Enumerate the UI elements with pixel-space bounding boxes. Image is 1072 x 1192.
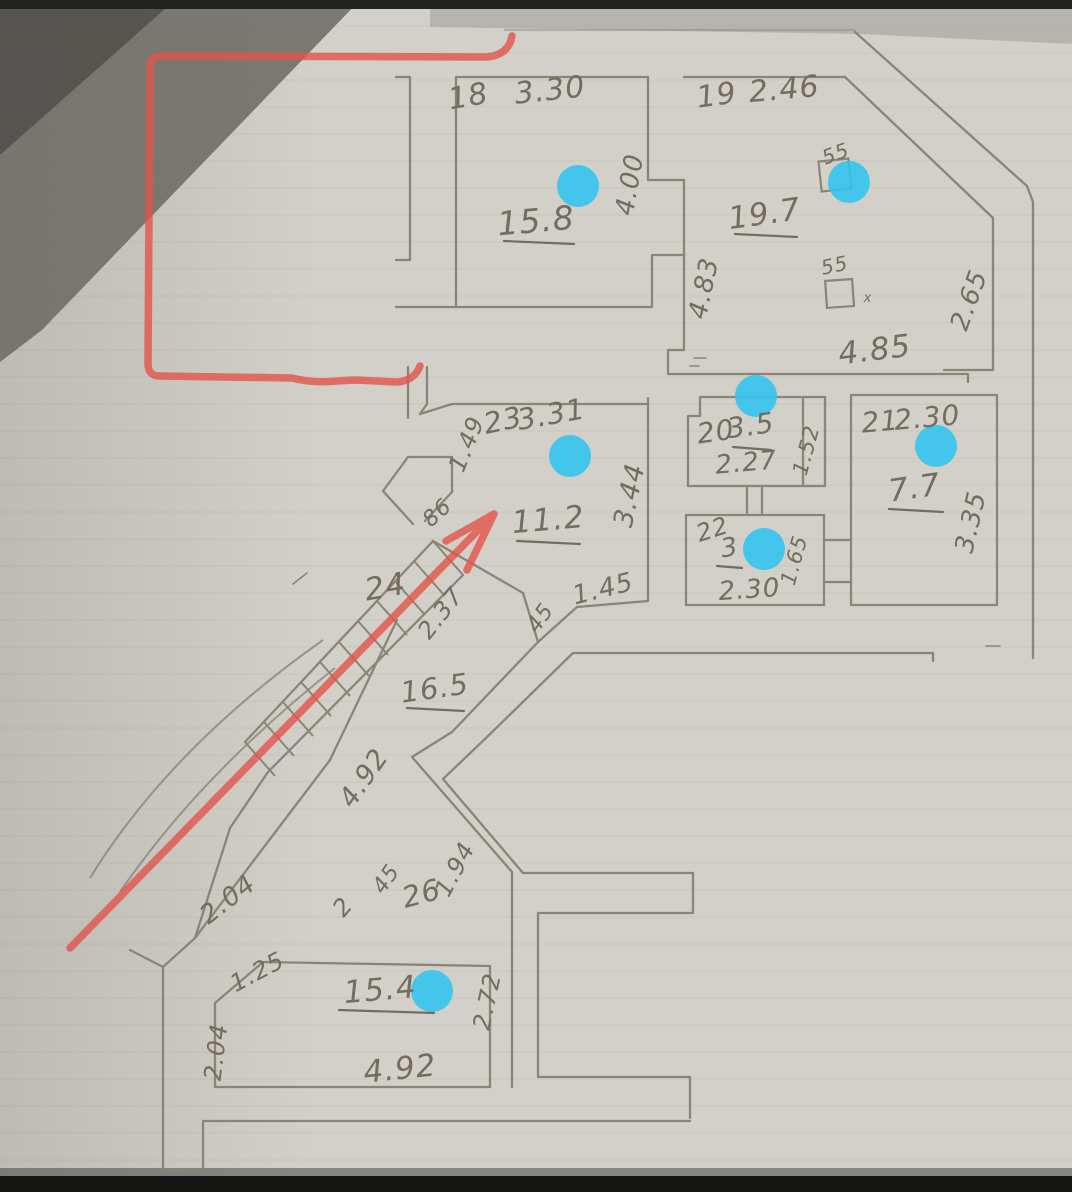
label-room18-width: 3.30 [513,69,587,111]
bottom-black-band [0,1176,1072,1192]
top-black-band [0,0,1072,9]
label-room21-area: 7.7 [886,467,943,510]
label-stairs-number: 24 [362,566,409,609]
floor-plan-drawing: 18 3.30 4.00 15.8 19 2.46 19.7 55 55 x 4… [0,0,1072,1192]
cyan-marker-dot-room23 [549,435,591,477]
label-room19-width: 2.46 [747,69,821,110]
label-room18-area: 15.8 [496,198,577,244]
floor-plan-photo: 18 3.30 4.00 15.8 19 2.46 19.7 55 55 x 4… [0,0,1072,1192]
label-room22-width: 2.30 [718,573,782,607]
label-room19-number: 19 [694,75,739,115]
label-room19-tick: x [863,291,873,306]
label-room20-area: 3.5 [725,406,777,445]
label-room15-area: 15.4 [342,969,418,1011]
label-room20-width: 2.27 [714,445,778,480]
label-room15-dim-bottom: 4.92 [362,1047,438,1090]
label-room21-width: 2.30 [893,398,962,437]
label-room18-number: 18 [446,76,492,117]
cyan-marker-dot-room19 [828,161,870,203]
cyan-marker-dot-room15 [411,970,453,1012]
cyan-marker-dot-room22 [743,528,785,570]
label-room23-area: 11.2 [510,499,586,541]
